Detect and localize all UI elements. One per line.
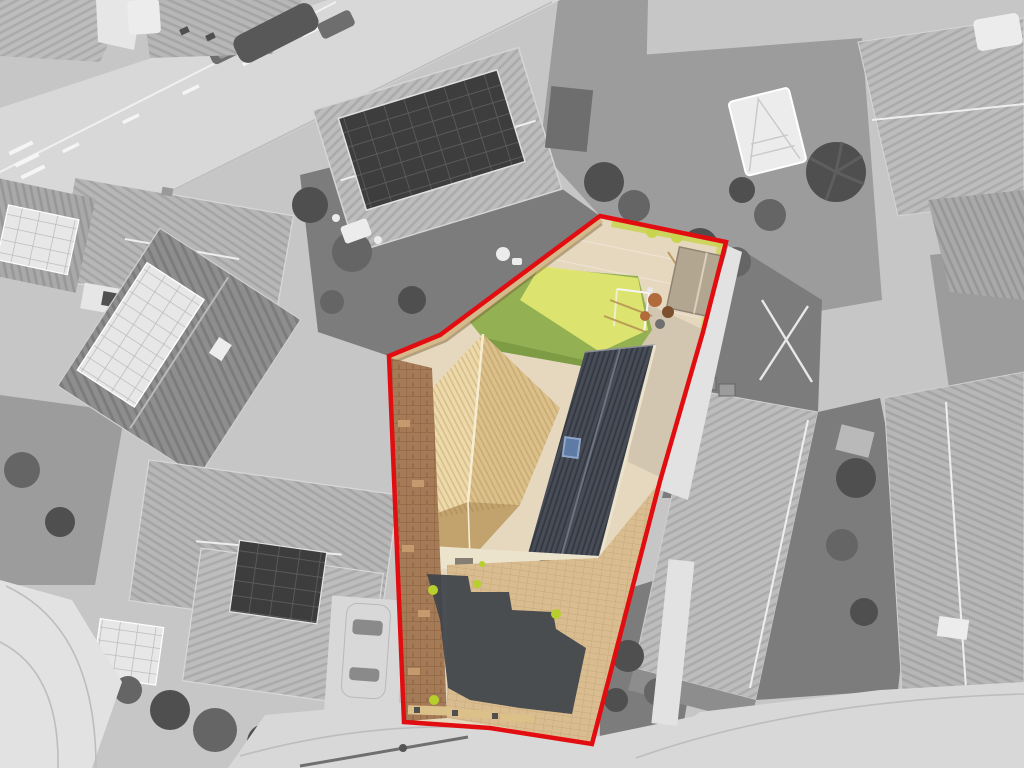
roof-skylight [563, 437, 580, 458]
parked-car-white [341, 603, 391, 700]
aerial-photograph [0, 0, 1024, 768]
aerial-photo-stage [0, 0, 1024, 768]
parked-van [127, 0, 161, 35]
bollard [399, 744, 407, 752]
palm-tree [806, 142, 866, 202]
driveway-bottom-left [324, 596, 406, 717]
solar-panel-array-dark-2 [230, 540, 327, 624]
long-roof-right [884, 372, 1024, 700]
